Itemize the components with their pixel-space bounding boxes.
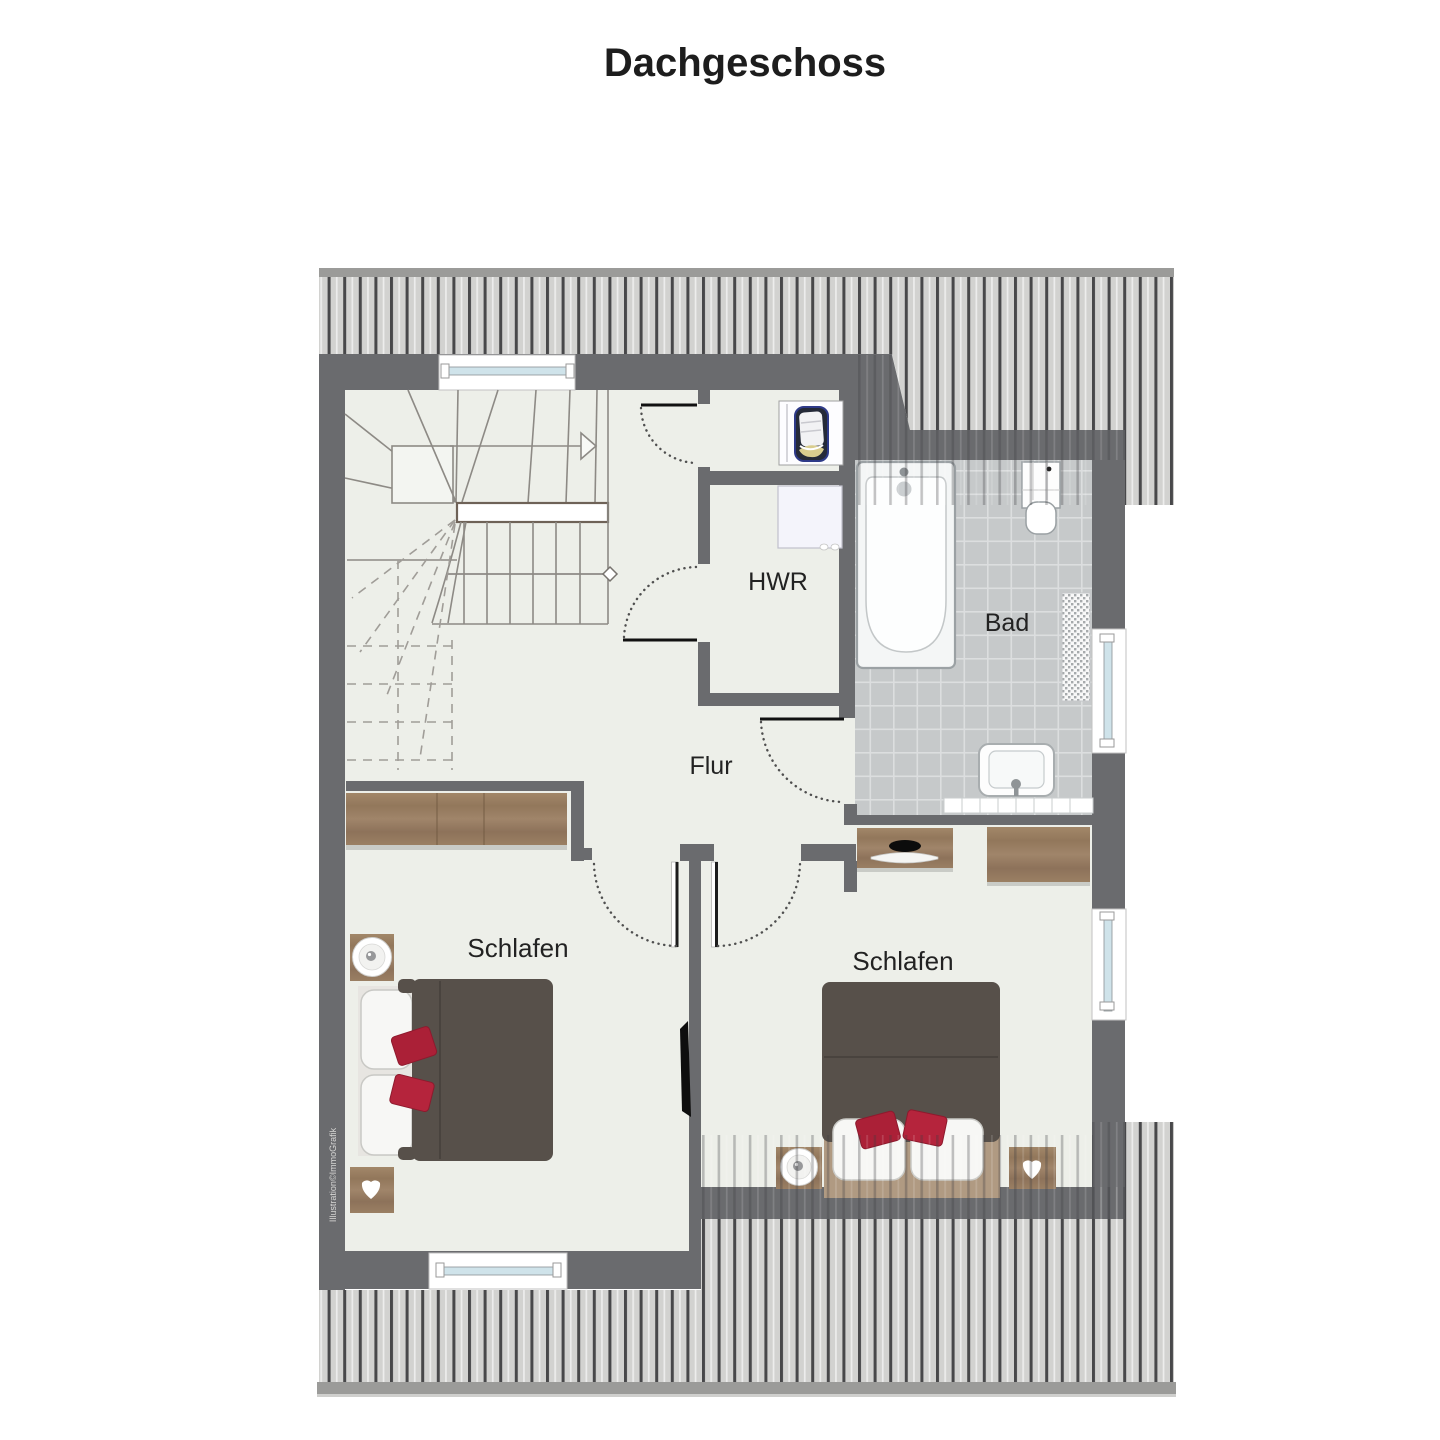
svg-text:Schlafen: Schlafen	[852, 946, 953, 976]
svg-text:Schlafen: Schlafen	[467, 933, 568, 963]
svg-text:Bad: Bad	[985, 609, 1029, 637]
svg-text:Flur: Flur	[689, 752, 732, 780]
svg-text:HWR: HWR	[748, 568, 808, 596]
svg-text:Illustration©ImmoGrafik: Illustration©ImmoGrafik	[328, 1127, 338, 1222]
svg-text:Dachgeschoss: Dachgeschoss	[604, 41, 886, 85]
